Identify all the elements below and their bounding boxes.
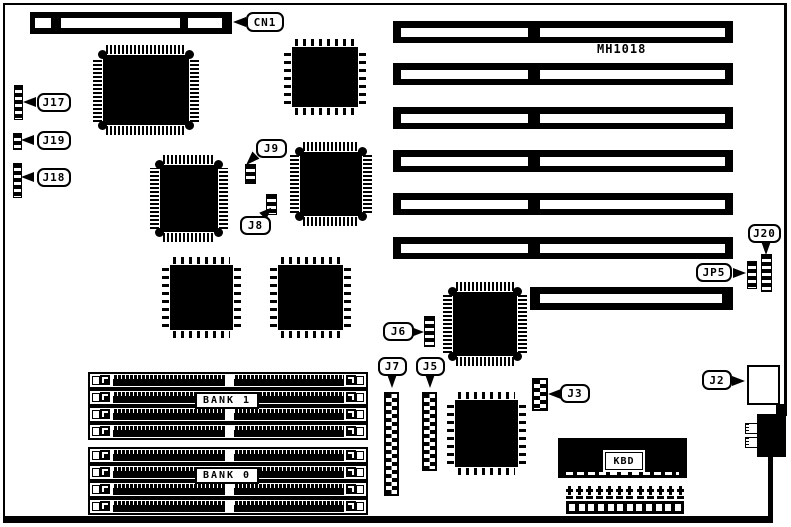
chip-pins <box>290 155 299 213</box>
power-pin-base <box>657 496 664 499</box>
simm-contacts <box>234 501 344 512</box>
chip-pins <box>363 155 372 213</box>
power-terminal <box>579 504 585 511</box>
chip-pins <box>173 257 230 264</box>
power-pin-base <box>647 496 654 499</box>
chip-corner-dot <box>185 50 194 59</box>
part <box>356 376 364 385</box>
part <box>100 426 110 436</box>
chip-corner-dot <box>185 121 194 130</box>
part <box>346 450 356 460</box>
simm-contacts <box>113 450 225 461</box>
slot-contact-right <box>540 114 725 123</box>
chip-pins <box>150 168 159 229</box>
part <box>356 410 364 419</box>
board-edge-bottom <box>3 516 773 523</box>
ic-chip-1 <box>103 55 189 125</box>
j5-pointer <box>425 374 435 388</box>
simm-contacts <box>113 375 225 386</box>
j8-label: J8 <box>240 216 271 235</box>
part <box>92 427 100 436</box>
expansion-slot <box>393 237 733 259</box>
part <box>100 467 110 477</box>
part <box>356 451 364 460</box>
cn1-slot-right <box>188 18 222 28</box>
slot-contact-right <box>540 157 725 166</box>
ic-chip-2 <box>292 47 358 107</box>
board-edge-right-lower <box>768 455 773 523</box>
power-terminal <box>598 504 604 511</box>
j3-connector <box>532 378 548 411</box>
keyboard-controller-chip: KBD <box>558 438 687 478</box>
power-terminal <box>608 504 614 511</box>
kbd-label: KBD <box>605 452 643 470</box>
slot-contact-left <box>401 28 528 37</box>
cn1-slot-left <box>35 18 51 28</box>
power-pin-base <box>586 496 593 499</box>
chip-pins <box>162 268 169 327</box>
cn1-pointer <box>233 17 246 27</box>
power-terminal <box>569 504 575 511</box>
power-pin-base <box>626 496 633 499</box>
part <box>356 502 364 511</box>
chip-corner-dot <box>98 50 107 59</box>
chip-corner-dot <box>358 147 367 156</box>
chip-pins <box>163 155 215 164</box>
j7-connector <box>384 392 399 496</box>
chip-pins <box>173 331 230 338</box>
power-pin <box>596 486 603 495</box>
slot-contact-right <box>540 200 725 209</box>
part <box>100 409 110 419</box>
j6-label: J6 <box>383 322 414 341</box>
power-pin <box>647 486 654 495</box>
power-pin <box>657 486 664 495</box>
part <box>92 451 100 460</box>
j2-keyboard-connector <box>747 365 780 405</box>
simm-contacts <box>234 409 344 420</box>
simm-socket <box>88 423 368 440</box>
part <box>92 468 100 477</box>
chip-pins <box>295 39 355 46</box>
simm-contacts <box>113 484 225 495</box>
bank1-label: BANK 1 <box>195 392 259 409</box>
power-pin <box>637 486 644 495</box>
j20-label: J20 <box>748 224 781 243</box>
expansion-slot-short <box>530 287 733 310</box>
board-edge-top <box>3 3 787 5</box>
power-connector <box>566 486 684 514</box>
chip-pins <box>295 108 355 115</box>
power-terminal <box>665 504 671 511</box>
chip-corner-dot <box>155 160 164 169</box>
part <box>100 484 110 494</box>
simm-socket <box>88 447 368 464</box>
chip-pins <box>359 50 366 104</box>
power-pin-base <box>566 496 573 499</box>
part <box>92 410 100 419</box>
power-pin <box>626 486 633 495</box>
power-pin <box>576 486 583 495</box>
part <box>346 409 356 419</box>
board-edge-right-upper <box>784 3 787 416</box>
chip-pins <box>458 392 515 399</box>
din-connector-body <box>757 414 786 457</box>
power-terminal <box>636 504 642 511</box>
power-pin-base <box>606 496 613 499</box>
j5-label: J5 <box>416 357 445 376</box>
j18-label: J18 <box>37 168 71 187</box>
part <box>100 501 110 511</box>
j9-label: J9 <box>256 139 287 158</box>
slot-contact-left <box>401 70 528 79</box>
chip-corner-dot <box>214 228 223 237</box>
j6-connector <box>424 316 435 347</box>
power-pin <box>566 486 573 495</box>
chip-pins <box>219 168 228 229</box>
expansion-slot <box>393 150 733 172</box>
power-pin-base <box>576 496 583 499</box>
j2-pointer <box>732 376 745 386</box>
jp5-connector <box>747 261 757 289</box>
simm-contacts <box>234 426 344 437</box>
ic-chip-7 <box>453 292 517 356</box>
din-pin-stub-1 <box>745 423 758 434</box>
j7-pointer <box>387 374 397 388</box>
part <box>92 502 100 511</box>
part <box>92 393 100 402</box>
cn1-slot-middle <box>61 18 180 28</box>
chip-pins <box>270 268 277 327</box>
part <box>92 485 100 494</box>
chip-pins <box>458 468 515 475</box>
j5-connector <box>422 392 437 471</box>
expansion-slot <box>393 63 733 85</box>
ic-chip-3 <box>160 165 218 232</box>
expansion-slot <box>393 21 733 43</box>
chip-pins <box>443 295 452 353</box>
power-terminal <box>588 504 594 511</box>
chip-pins <box>456 357 514 366</box>
power-terminal <box>675 504 681 511</box>
chip-pins <box>284 50 291 104</box>
cn1-label: CN1 <box>246 12 284 32</box>
ic-chip-8 <box>455 400 518 467</box>
power-pin-base <box>616 496 623 499</box>
power-pin-base <box>667 496 674 499</box>
part <box>346 375 356 385</box>
simm-socket <box>88 498 368 515</box>
j17-connector <box>14 85 23 120</box>
part <box>356 427 364 436</box>
slot-contact-left <box>401 114 528 123</box>
part <box>100 392 110 402</box>
chip-pins <box>163 233 215 242</box>
chip-pins <box>190 58 199 122</box>
j7-label: J7 <box>378 357 407 376</box>
part <box>346 501 356 511</box>
part <box>346 467 356 477</box>
slot-contact-right <box>540 244 725 253</box>
part <box>100 450 110 460</box>
simm-contacts <box>234 484 344 495</box>
part <box>100 375 110 385</box>
part <box>356 393 364 402</box>
chip-corner-dot <box>358 212 367 221</box>
power-pin-base <box>596 496 603 499</box>
part <box>346 426 356 436</box>
j18-pointer <box>21 172 34 182</box>
expansion-slot <box>393 107 733 129</box>
simm-contacts <box>113 501 225 512</box>
chip-pins <box>456 282 514 291</box>
din-pin-stub-2 <box>745 437 758 448</box>
chip-pins <box>106 45 186 54</box>
slot-contact-right <box>540 70 725 79</box>
chip-pins <box>303 217 359 226</box>
jp5-label: JP5 <box>696 263 732 282</box>
chip-pins <box>281 257 340 264</box>
chip-corner-dot <box>448 352 457 361</box>
power-pin <box>586 486 593 495</box>
kbd-pin-row <box>566 472 679 475</box>
j20-connector <box>761 254 772 292</box>
simm-contacts <box>113 426 225 437</box>
chip-pins <box>519 403 526 464</box>
power-pin <box>616 486 623 495</box>
chip-pins <box>518 295 527 353</box>
j2-label: J2 <box>702 370 732 390</box>
j3-label: J3 <box>560 384 590 403</box>
power-pin-base <box>637 496 644 499</box>
j17-label: J17 <box>37 93 71 112</box>
power-terminal-block <box>566 501 684 514</box>
power-terminal <box>617 504 623 511</box>
chip-pins <box>281 331 340 338</box>
slot-contact-left <box>401 200 528 209</box>
chip-corner-dot <box>295 212 304 221</box>
chip-pins <box>447 403 454 464</box>
part <box>356 485 364 494</box>
power-pin-row <box>566 486 684 495</box>
chip-corner-dot <box>295 147 304 156</box>
bank0-label: BANK 0 <box>195 467 259 484</box>
part <box>356 468 364 477</box>
ic-chip-6 <box>278 265 343 330</box>
expansion-slot <box>393 193 733 215</box>
chip-pins <box>303 142 359 151</box>
cn1-connector <box>30 12 232 34</box>
chip-corner-dot <box>98 121 107 130</box>
part <box>346 484 356 494</box>
power-pin-base-row <box>566 495 684 499</box>
ic-chip-4 <box>300 152 362 216</box>
chip-pins <box>106 126 186 135</box>
part <box>346 392 356 402</box>
part <box>92 376 100 385</box>
j17-pointer <box>23 97 36 107</box>
chip-corner-dot <box>448 287 457 296</box>
simm-contacts <box>234 375 344 386</box>
power-terminal <box>656 504 662 511</box>
slot-contact-left <box>401 157 528 166</box>
j19-pointer <box>21 135 34 145</box>
jp5-pointer <box>733 268 746 278</box>
chip-pins <box>234 268 241 327</box>
power-pin <box>677 486 684 495</box>
power-pin <box>606 486 613 495</box>
slot-contact-left <box>401 244 528 253</box>
simm-socket <box>88 372 368 389</box>
chip-corner-dot <box>513 287 522 296</box>
chip-pins <box>93 58 102 122</box>
chip-corner-dot <box>214 160 223 169</box>
j20-pointer <box>761 241 771 255</box>
ic-chip-5 <box>170 265 233 330</box>
chip-corner-dot <box>155 228 164 237</box>
board-model-label: MH1018 <box>597 42 646 56</box>
simm-contacts <box>113 409 225 420</box>
simm-contacts <box>234 450 344 461</box>
j19-label: J19 <box>37 131 71 150</box>
chip-corner-dot <box>513 352 522 361</box>
chip-pins <box>344 268 351 327</box>
slot-contact <box>540 294 722 303</box>
power-pin-base <box>677 496 684 499</box>
power-terminal <box>646 504 652 511</box>
motherboard-diagram: MH1018 BANK 1 BANK 0 KBD CN1 J17 J19 J18… <box>0 0 791 527</box>
slot-contact-right <box>540 28 725 37</box>
board-edge-left <box>3 3 5 523</box>
power-pin <box>667 486 674 495</box>
power-terminal <box>627 504 633 511</box>
